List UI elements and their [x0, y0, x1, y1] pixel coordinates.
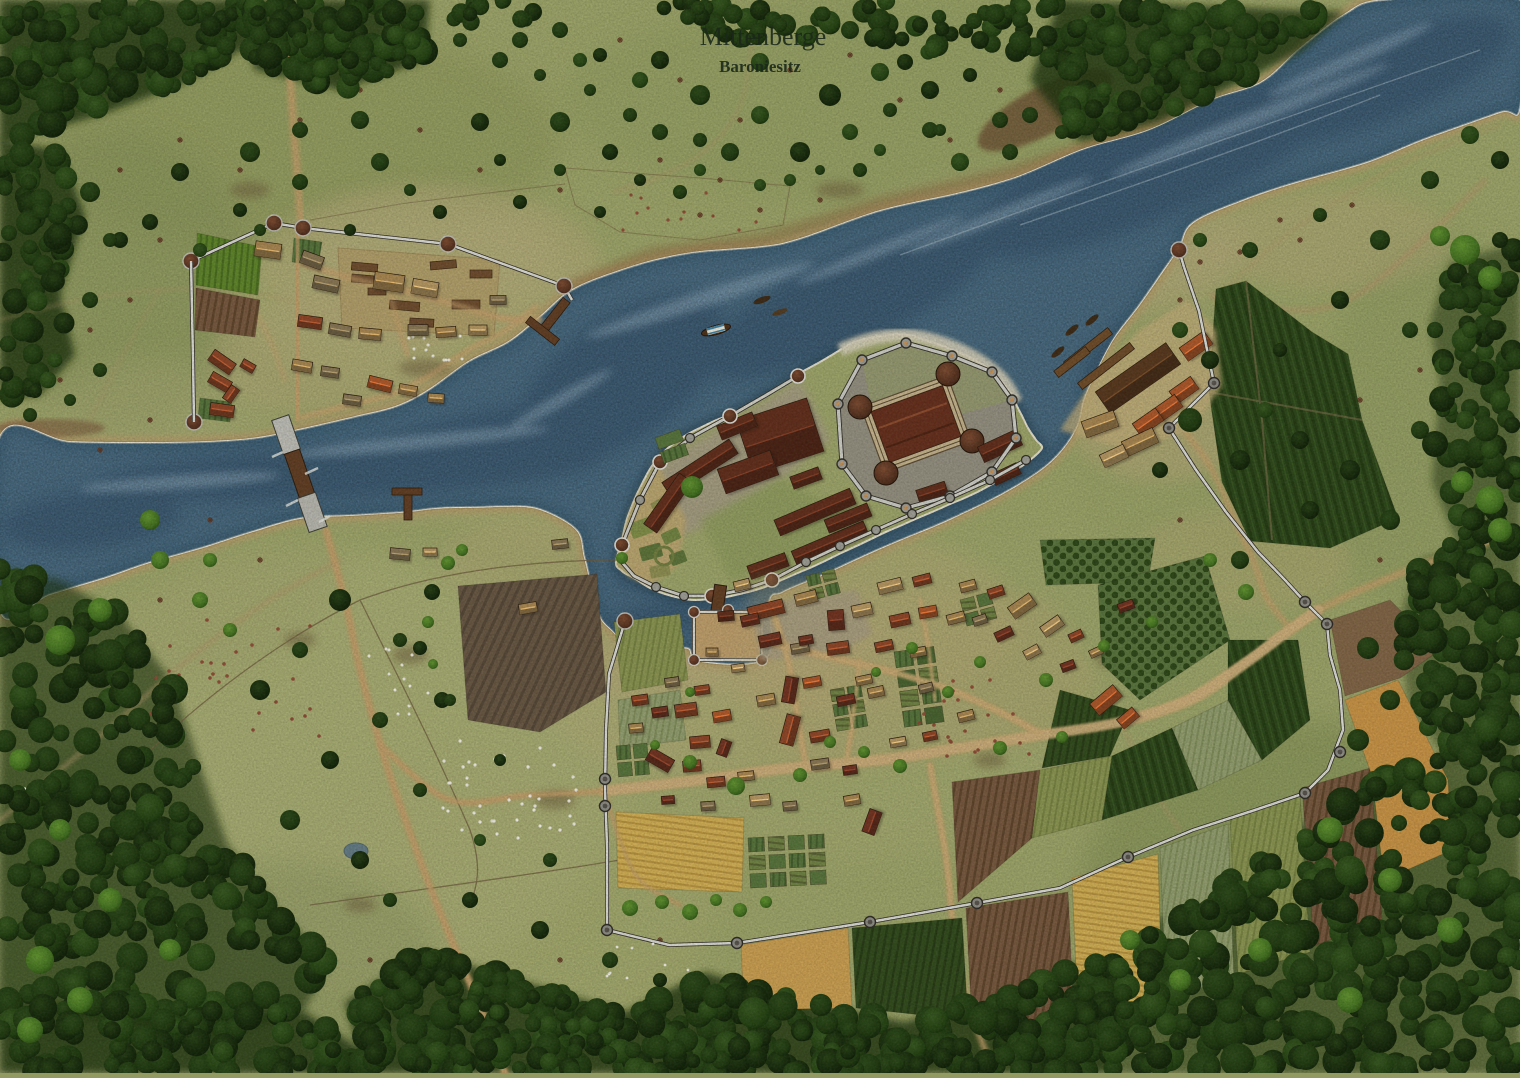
svg-text:Baroniesitz: Baroniesitz: [719, 57, 801, 76]
svg-text:Mittenberge: Mittenberge: [700, 22, 827, 51]
